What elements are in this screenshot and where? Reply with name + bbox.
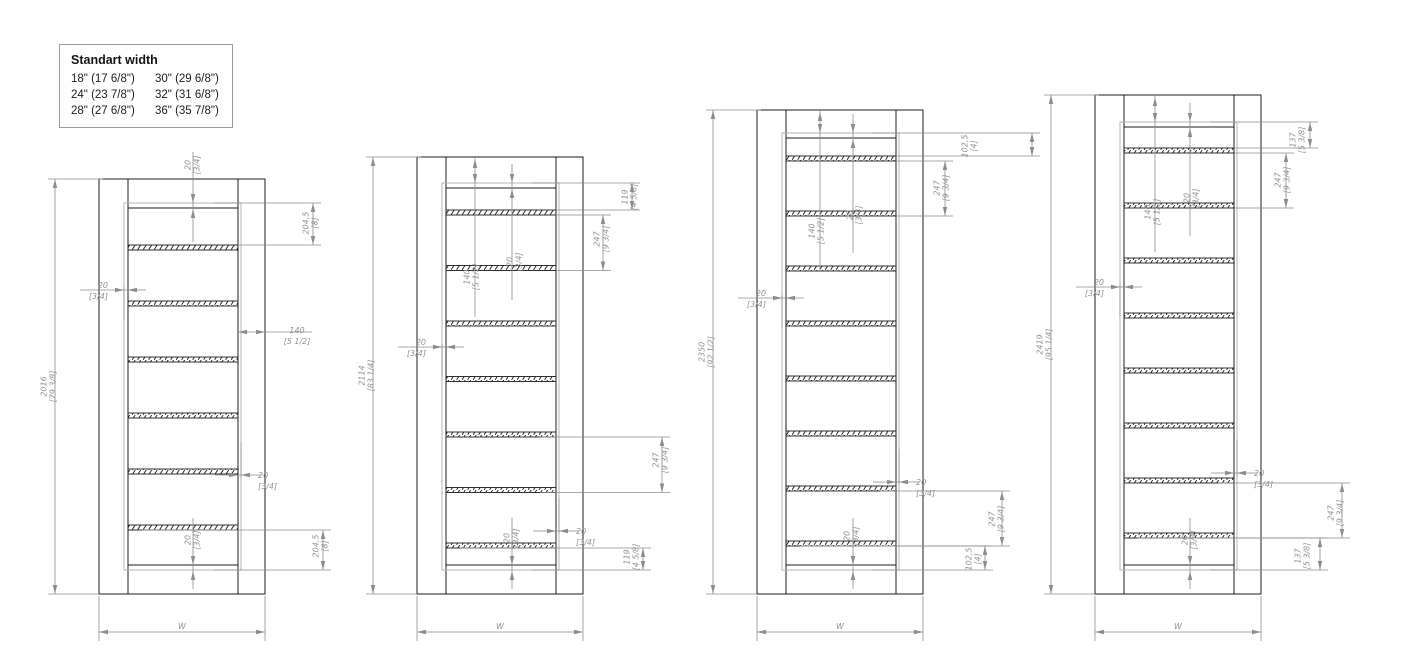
shelf-hatched bbox=[786, 321, 896, 326]
overall-height-label: 2419[95 1/4] bbox=[1036, 329, 1054, 361]
width-label: W bbox=[496, 622, 505, 631]
dim-arrow bbox=[473, 174, 477, 183]
shelf-hatched bbox=[786, 486, 896, 491]
dim-arrow bbox=[1318, 538, 1322, 547]
overall-height-label: 2350[92 1/2] bbox=[698, 336, 716, 368]
top-gap-label: 119[4 5/8] bbox=[621, 184, 639, 211]
dim-arrow bbox=[1000, 537, 1004, 546]
edge-gap-label: 20[3/4] bbox=[916, 478, 935, 498]
dim-arrow bbox=[660, 484, 664, 493]
shelf-pitch-label: 247[9 3/4] bbox=[988, 506, 1006, 533]
shelf-hatched bbox=[786, 156, 896, 161]
dim-arrow bbox=[115, 288, 124, 292]
dim-arrow bbox=[1284, 153, 1288, 162]
dim-arrow bbox=[1049, 585, 1053, 594]
dim-arrow bbox=[1340, 483, 1344, 492]
top-rail-label: 20[3/4] bbox=[184, 155, 202, 174]
dim-arrow bbox=[1000, 491, 1004, 500]
overall-height-label: 2114[83 1/4] bbox=[358, 360, 376, 392]
dim-arrow bbox=[1252, 630, 1261, 634]
dim-arrow bbox=[256, 630, 265, 634]
shelf-hatched bbox=[128, 245, 238, 250]
shelf-hatched bbox=[128, 413, 238, 418]
dim-arrow bbox=[899, 480, 908, 484]
drawing-sheet: { "legend": { "title": "Standart width",… bbox=[0, 0, 1401, 670]
drawing-1-elevation-2016: 2016[79 3/8]W20[3/4]20[3/4]204,5[8]204,5… bbox=[40, 152, 332, 641]
shelf-pitch-label: 247[9 3/4] bbox=[1274, 167, 1292, 194]
dim-arrow bbox=[128, 288, 137, 292]
dim-arrow bbox=[1153, 97, 1157, 106]
dim-arrow bbox=[887, 480, 896, 484]
dim-arrow bbox=[191, 556, 195, 565]
bottom-gap-label: 137[5 3/8] bbox=[1294, 543, 1312, 570]
dim-arrow bbox=[983, 561, 987, 570]
dim-arrow bbox=[433, 345, 442, 349]
shelf-hatched bbox=[786, 376, 896, 381]
dim-arrow bbox=[321, 561, 325, 570]
shelf-hatched bbox=[786, 541, 896, 546]
top-gap-label: 102,5[4] bbox=[961, 135, 979, 158]
dim-arrow bbox=[1237, 471, 1246, 475]
dim-arrow bbox=[1318, 561, 1322, 570]
dim-arrow bbox=[641, 548, 645, 557]
dim-arrow bbox=[1095, 630, 1104, 634]
dim-arrow bbox=[559, 529, 568, 533]
top-gap-label: 204,5[8] bbox=[302, 212, 320, 235]
dim-arrow bbox=[1225, 471, 1234, 475]
dim-arrow bbox=[311, 236, 315, 245]
leaf-outline bbox=[1120, 122, 1237, 570]
header-height-label: 140[5 1/2] bbox=[808, 218, 826, 245]
side-clearance-label: 20[3/4] bbox=[407, 338, 426, 358]
dim-arrow bbox=[547, 529, 556, 533]
dim-arrow bbox=[99, 630, 108, 634]
dim-arrow bbox=[601, 215, 605, 224]
dim-arrow bbox=[1030, 133, 1034, 142]
dim-arrow bbox=[321, 530, 325, 539]
dim-arrow bbox=[660, 437, 664, 446]
dim-arrow bbox=[711, 585, 715, 594]
shelf-hatched bbox=[786, 211, 896, 216]
shelf-hatched bbox=[446, 543, 556, 548]
dim-arrow bbox=[601, 262, 605, 271]
shelf-pitch-label: 247[9 3/4] bbox=[652, 447, 670, 474]
shelf-hatched bbox=[128, 469, 238, 474]
dim-arrow bbox=[371, 157, 375, 166]
shelf-hatched bbox=[1124, 313, 1234, 318]
dim-arrow bbox=[773, 296, 782, 300]
shelf-pitch-label: 247[9 3/4] bbox=[593, 226, 611, 253]
dim-arrow bbox=[851, 571, 855, 580]
shelf-hatched bbox=[128, 525, 238, 530]
drawing-2-elevation-2114: 2114[83 1/4]W20[3/4]20[3/4]119[4 5/8]119… bbox=[358, 157, 671, 641]
dim-arrow bbox=[1049, 95, 1053, 104]
drawing-4-elevation-2419: 2419[95 1/4]W20[3/4]20[3/4]137[5 3/8]137… bbox=[1036, 95, 1351, 641]
dim-arrow bbox=[757, 630, 766, 634]
edge-gap-label: 20[3/4] bbox=[258, 471, 277, 491]
shelf-hatched bbox=[1124, 478, 1234, 483]
dim-arrow bbox=[711, 110, 715, 119]
dim-arrow bbox=[641, 561, 645, 570]
dim-arrow bbox=[510, 174, 514, 183]
dim-arrow bbox=[53, 179, 57, 188]
dim-arrow bbox=[510, 556, 514, 565]
dim-arrow bbox=[1308, 139, 1312, 148]
technical-drawing-canvas: 2016[79 3/8]W20[3/4]20[3/4]204,5[8]204,5… bbox=[0, 0, 1401, 670]
dim-arrow bbox=[446, 345, 455, 349]
dim-arrow bbox=[983, 546, 987, 555]
shelf-hatched bbox=[1124, 203, 1234, 208]
shelf-hatched bbox=[446, 432, 556, 437]
dim-arrow bbox=[1188, 571, 1192, 580]
dim-arrow bbox=[191, 571, 195, 580]
drawing-3-elevation-2350: 2350[92 1/2]W20[3/4]20[3/4]102,5[4]102,5… bbox=[698, 110, 1041, 641]
shelf-hatched bbox=[446, 488, 556, 493]
bottom-gap-label: 102,5[4] bbox=[965, 548, 983, 571]
side-clearance-label: 20[3/4] bbox=[747, 289, 766, 309]
dim-arrow bbox=[53, 585, 57, 594]
edge-gap-label: 20[3/4] bbox=[576, 527, 595, 547]
width-label: W bbox=[178, 622, 187, 631]
dim-arrow bbox=[786, 296, 795, 300]
bottom-rail-label: 20[3/4] bbox=[184, 530, 202, 549]
shelf-hatched bbox=[1124, 368, 1234, 373]
width-label: W bbox=[836, 622, 845, 631]
dim-arrow bbox=[191, 194, 195, 203]
edge-gap-label: 20[3/4] bbox=[1254, 469, 1273, 489]
shelf-hatched bbox=[1124, 533, 1234, 538]
side-clearance-label: 20[3/4] bbox=[89, 281, 108, 301]
dim-arrow bbox=[1030, 147, 1034, 156]
dim-arrow bbox=[417, 630, 426, 634]
dim-arrow bbox=[818, 124, 822, 133]
width-label: W bbox=[1174, 622, 1183, 631]
dim-arrow bbox=[510, 571, 514, 580]
shelf-hatched bbox=[786, 431, 896, 436]
dim-arrow bbox=[241, 473, 250, 477]
shelf-hatched bbox=[446, 210, 556, 215]
side-clearance-label: 20[3/4] bbox=[1085, 278, 1104, 298]
top-gap-label: 137[5 3/8] bbox=[1289, 127, 1307, 154]
shelf-hatched bbox=[1124, 258, 1234, 263]
shelf-hatched bbox=[128, 301, 238, 306]
leaf-outline bbox=[124, 203, 241, 570]
shelf-hatched bbox=[1124, 423, 1234, 428]
dim-arrow bbox=[851, 124, 855, 133]
frame-width-label: 140[5 1/2] bbox=[284, 326, 311, 346]
bottom-gap-label: 204,5[8] bbox=[312, 535, 330, 558]
dim-arrow bbox=[943, 161, 947, 170]
dim-arrow bbox=[1111, 285, 1120, 289]
dim-arrow bbox=[1308, 122, 1312, 131]
leaf-outline bbox=[782, 133, 899, 570]
dim-arrow bbox=[1284, 199, 1288, 208]
shelf-hatched bbox=[446, 377, 556, 382]
dim-arrow bbox=[818, 112, 822, 121]
shelf-hatched bbox=[128, 357, 238, 362]
dim-arrow bbox=[238, 330, 247, 334]
dim-arrow bbox=[1124, 285, 1133, 289]
dim-arrow bbox=[473, 159, 477, 168]
dim-arrow bbox=[574, 630, 583, 634]
dim-arrow bbox=[1188, 556, 1192, 565]
dim-arrow bbox=[371, 585, 375, 594]
dim-arrow bbox=[191, 209, 195, 218]
overall-height-label: 2016[79 3/8] bbox=[40, 371, 58, 403]
shelf-pitch-label: 247[9 3/4] bbox=[1327, 500, 1345, 527]
top-rail-label: 20[3/4] bbox=[846, 205, 864, 224]
dim-arrow bbox=[851, 556, 855, 565]
shelf-hatched bbox=[786, 266, 896, 271]
dim-arrow bbox=[943, 207, 947, 216]
dim-arrow bbox=[1340, 529, 1344, 538]
dim-arrow bbox=[1188, 128, 1192, 137]
shelf-pitch-label: 247[9 3/4] bbox=[933, 175, 951, 202]
dim-arrow bbox=[1153, 113, 1157, 122]
dim-arrow bbox=[311, 203, 315, 212]
shelf-hatched bbox=[446, 321, 556, 326]
dim-arrow bbox=[1188, 113, 1192, 122]
dim-arrow bbox=[256, 330, 265, 334]
dim-arrow bbox=[851, 139, 855, 148]
shelf-hatched bbox=[1124, 148, 1234, 153]
dim-arrow bbox=[914, 630, 923, 634]
dim-arrow bbox=[510, 189, 514, 198]
